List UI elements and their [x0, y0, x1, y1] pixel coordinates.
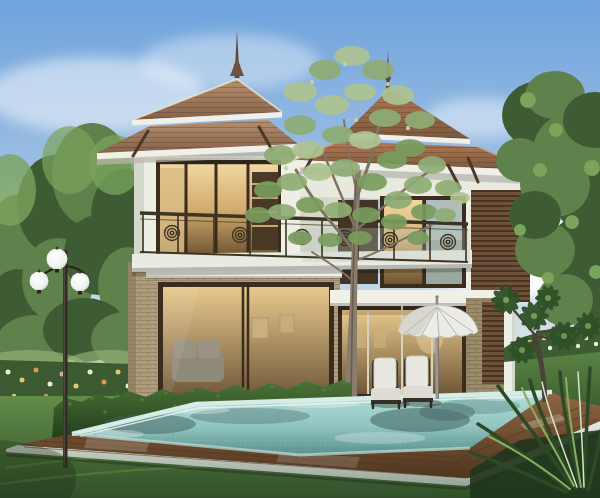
wall-art [252, 318, 268, 338]
villa-pool-rendering [0, 0, 600, 498]
scene-canvas [0, 0, 600, 498]
lamp-pole [63, 250, 68, 468]
